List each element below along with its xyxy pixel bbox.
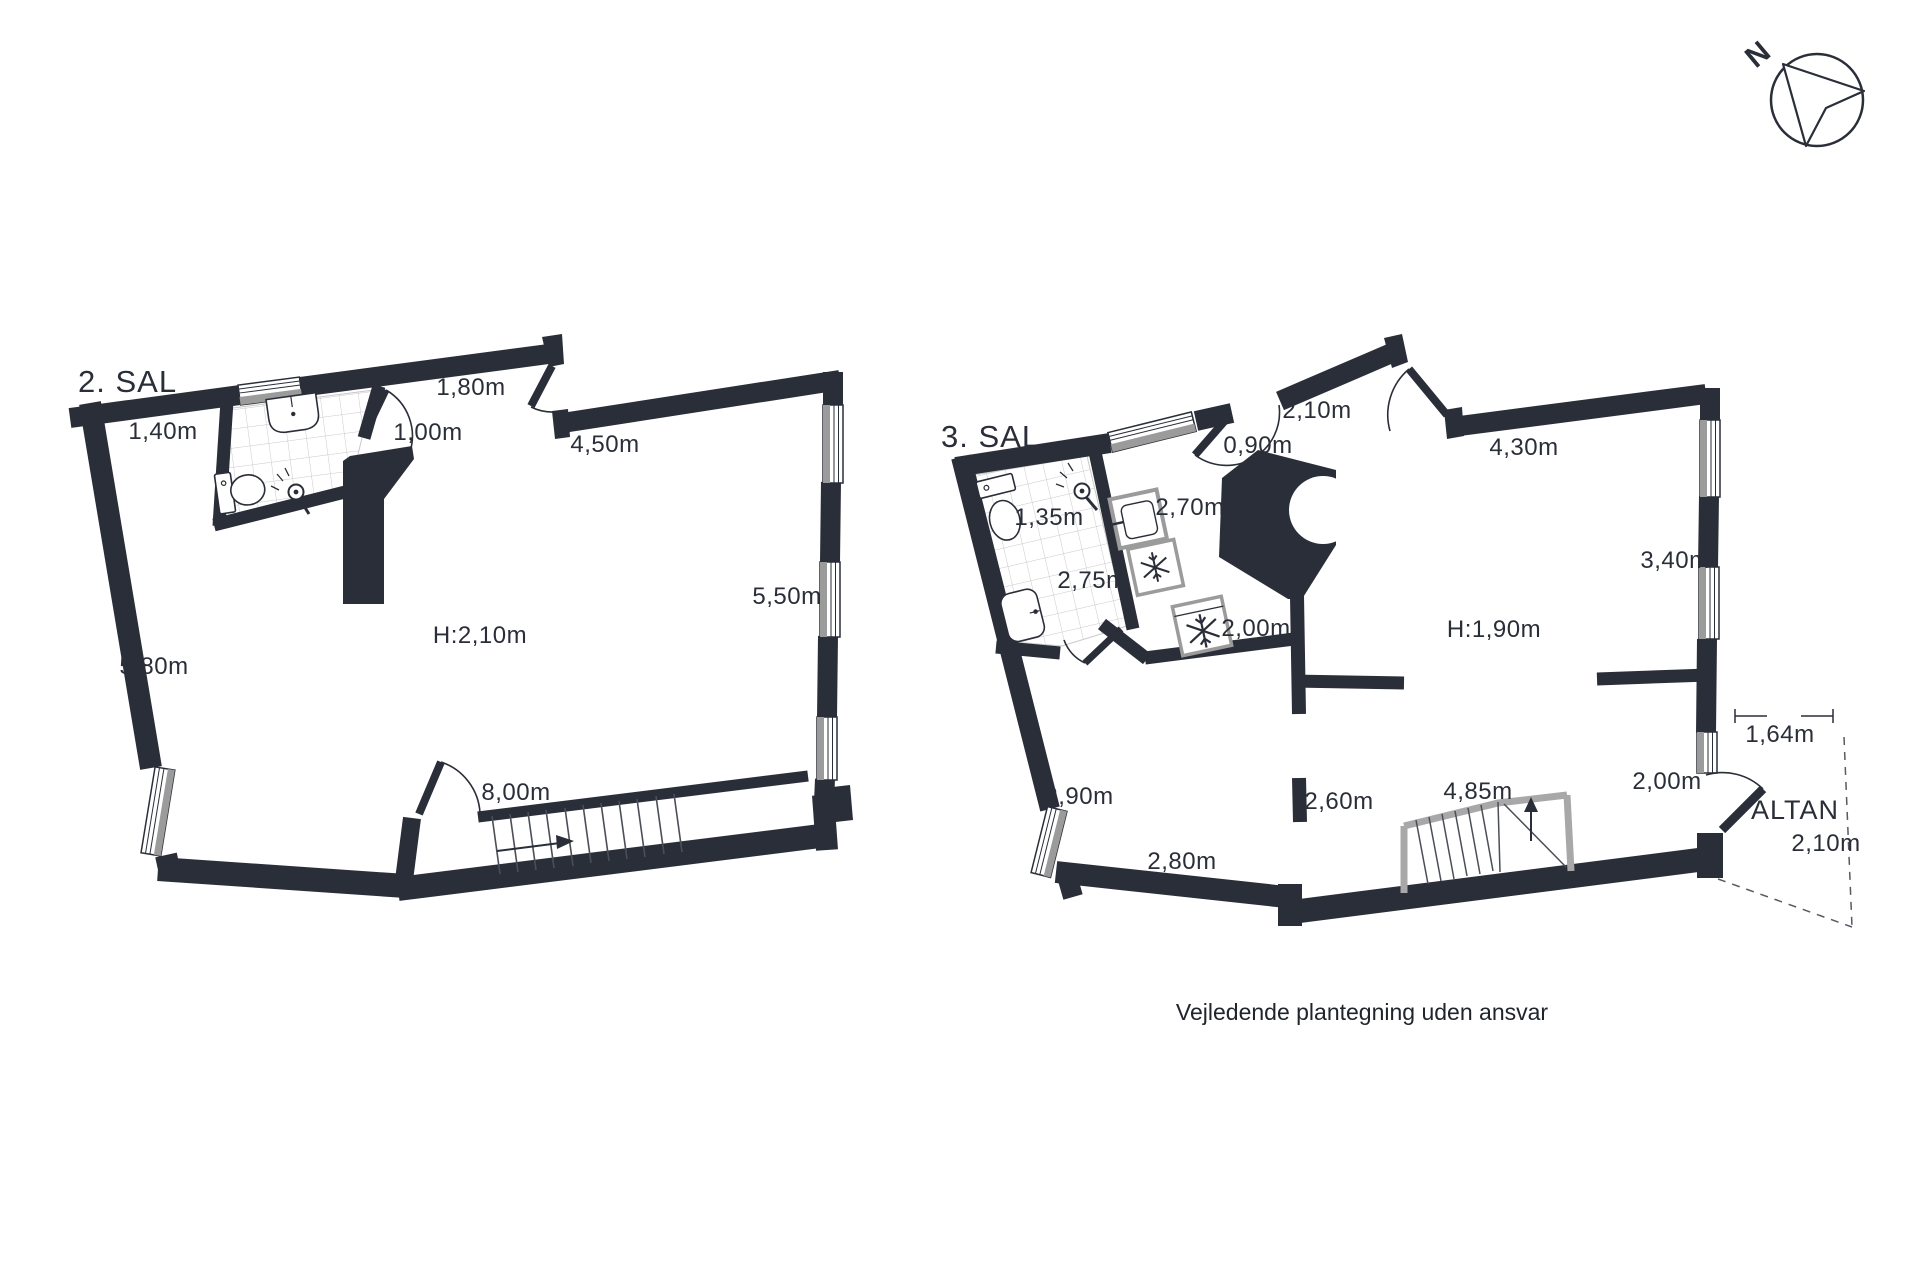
- ceiling-height-label: H:2,10m: [433, 622, 527, 649]
- stairwell: [398, 762, 853, 889]
- ceiling-height-label: H:1,90m: [1447, 616, 1541, 643]
- dimension-label: 4,50m: [570, 431, 639, 458]
- chimney-shaft: [1219, 450, 1357, 599]
- floorplan-canvas: N: [0, 0, 1920, 1280]
- dimension-label: 8,00m: [481, 779, 550, 806]
- dimension-label: 2,70m: [1155, 494, 1224, 521]
- plan-title: 3. SAL: [941, 419, 1040, 454]
- dimension-label: 0,90m: [1223, 432, 1292, 459]
- dimension-label: 2,60m: [1304, 788, 1373, 815]
- floorplan-page: N: [0, 0, 1920, 1280]
- dimension-label: 2,80m: [1147, 848, 1216, 875]
- plan-title: 2. SAL: [78, 364, 177, 399]
- dimension-label: 2,90m: [1044, 783, 1113, 810]
- stair-door: [419, 762, 441, 814]
- dimension-label: 1,64m: [1745, 721, 1814, 748]
- wall-jamb-block: [552, 409, 570, 439]
- plan-3-sal: 3. SAL 2,10m 0,90m 4,30m 1,35m 2,70m 3,4…: [941, 334, 1861, 927]
- dimension-label: 5,80m: [119, 653, 188, 680]
- balcony-label: ALTAN: [1751, 795, 1839, 825]
- dimension-label: 2,10m: [1791, 830, 1860, 857]
- dimension-label: 2,75m: [1057, 567, 1126, 594]
- wall-step-block: [1278, 884, 1302, 926]
- entry-door: [1388, 369, 1447, 431]
- dimension-label: 4,85m: [1443, 778, 1512, 805]
- dimension-label: 1,35m: [1014, 504, 1083, 531]
- compass-needle-icon: [1783, 64, 1864, 146]
- plan-2-sal: 2. SAL 1,40m 1,80m 1,00m 4,50m 5,50m 5,8…: [70, 334, 853, 889]
- compass-rose: N: [1739, 35, 1864, 146]
- fridge-icon: [1128, 540, 1184, 596]
- dimension-label: 3,40m: [1640, 547, 1709, 574]
- window-top: [1108, 412, 1196, 452]
- window-right-2: [1699, 567, 1719, 639]
- dimension-label: 1,40m: [128, 418, 197, 445]
- dimension-label: 1,80m: [436, 374, 505, 401]
- dimension-label: 5,50m: [752, 583, 821, 610]
- compass-north-label: N: [1739, 35, 1777, 74]
- dimension-label: 4,30m: [1489, 434, 1558, 461]
- dimension-label: 1,00m: [393, 419, 462, 446]
- wall-corner-block: [1697, 833, 1723, 878]
- window-right-3: [817, 717, 837, 780]
- dimension-label: 2,10m: [1282, 397, 1351, 424]
- window-right-2: [820, 562, 840, 637]
- entry-door: [531, 366, 554, 412]
- dimension-label: 2,00m: [1221, 615, 1290, 642]
- window-right-1: [1700, 420, 1720, 497]
- interior-wall-stub: [343, 446, 414, 604]
- dimension-label: 2,00m: [1632, 768, 1701, 795]
- window-right-3: [1697, 732, 1717, 773]
- window-left: [141, 767, 175, 856]
- disclaimer-text: Vejledende plantegning uden ansvar: [1176, 999, 1548, 1025]
- window-right-1: [823, 405, 843, 483]
